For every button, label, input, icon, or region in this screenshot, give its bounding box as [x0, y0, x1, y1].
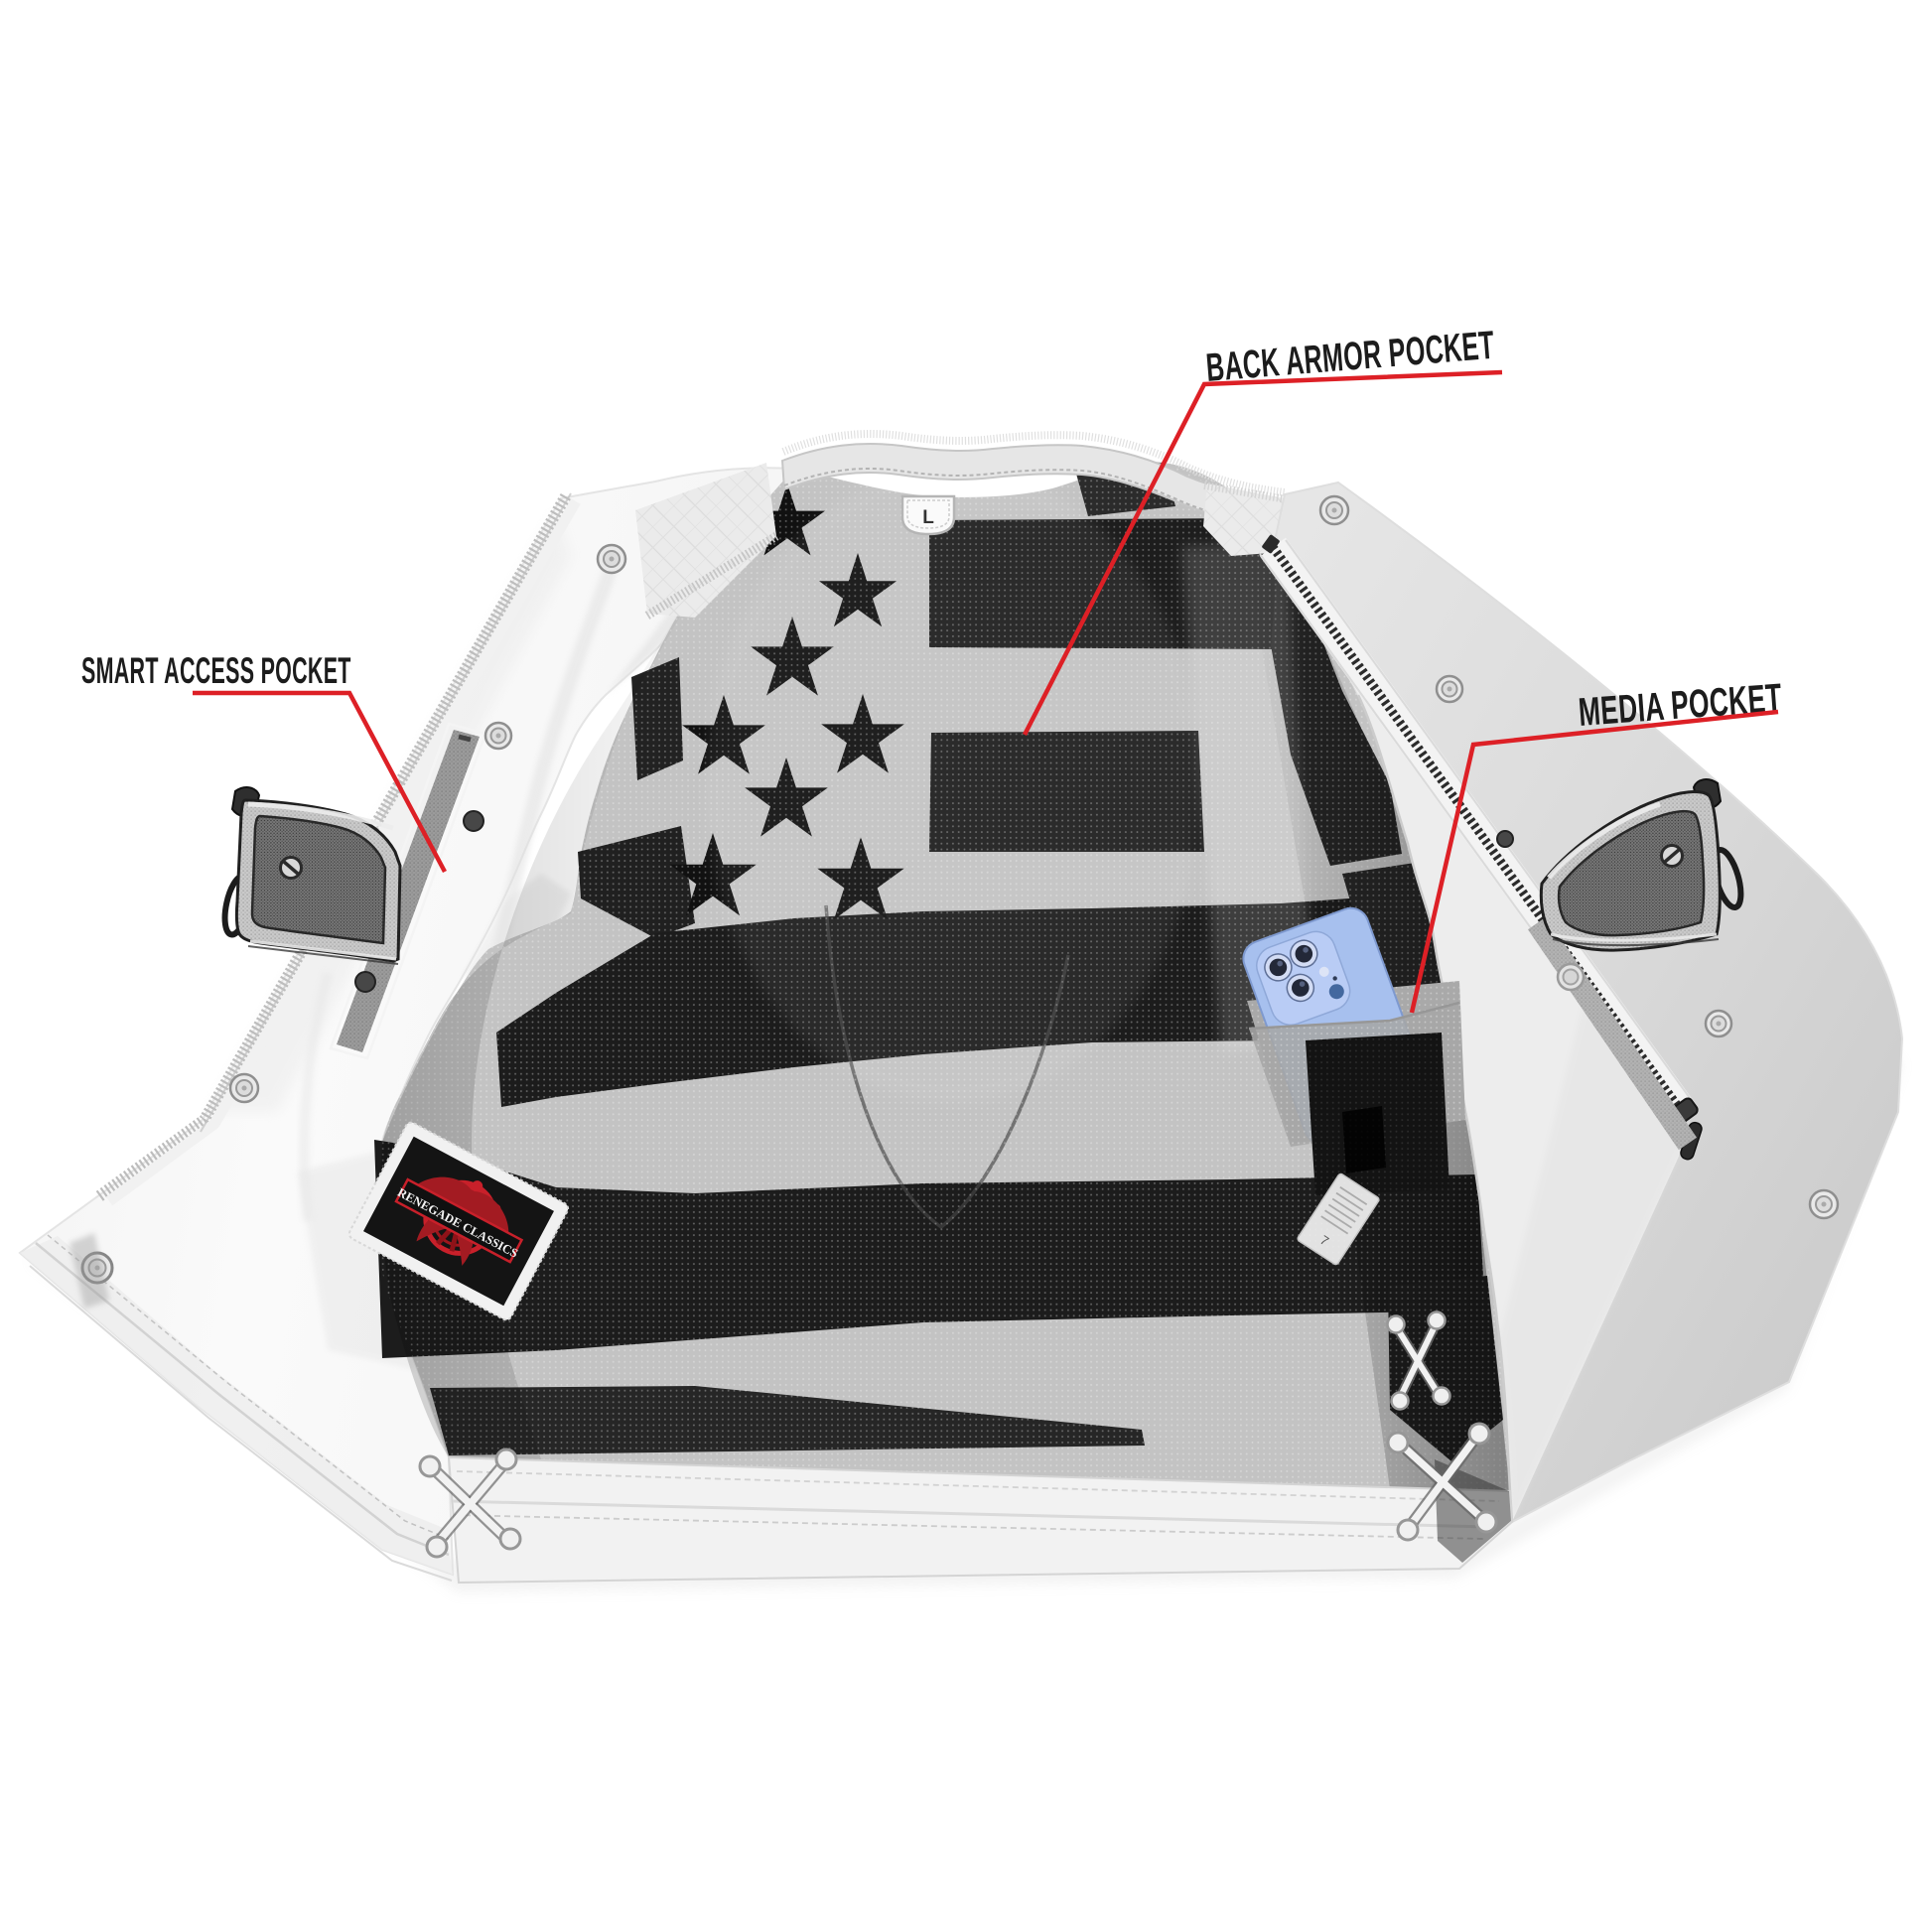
svg-text:SMART ACCESS POCKET: SMART ACCESS POCKET — [81, 651, 351, 691]
svg-text:L: L — [922, 507, 934, 528]
